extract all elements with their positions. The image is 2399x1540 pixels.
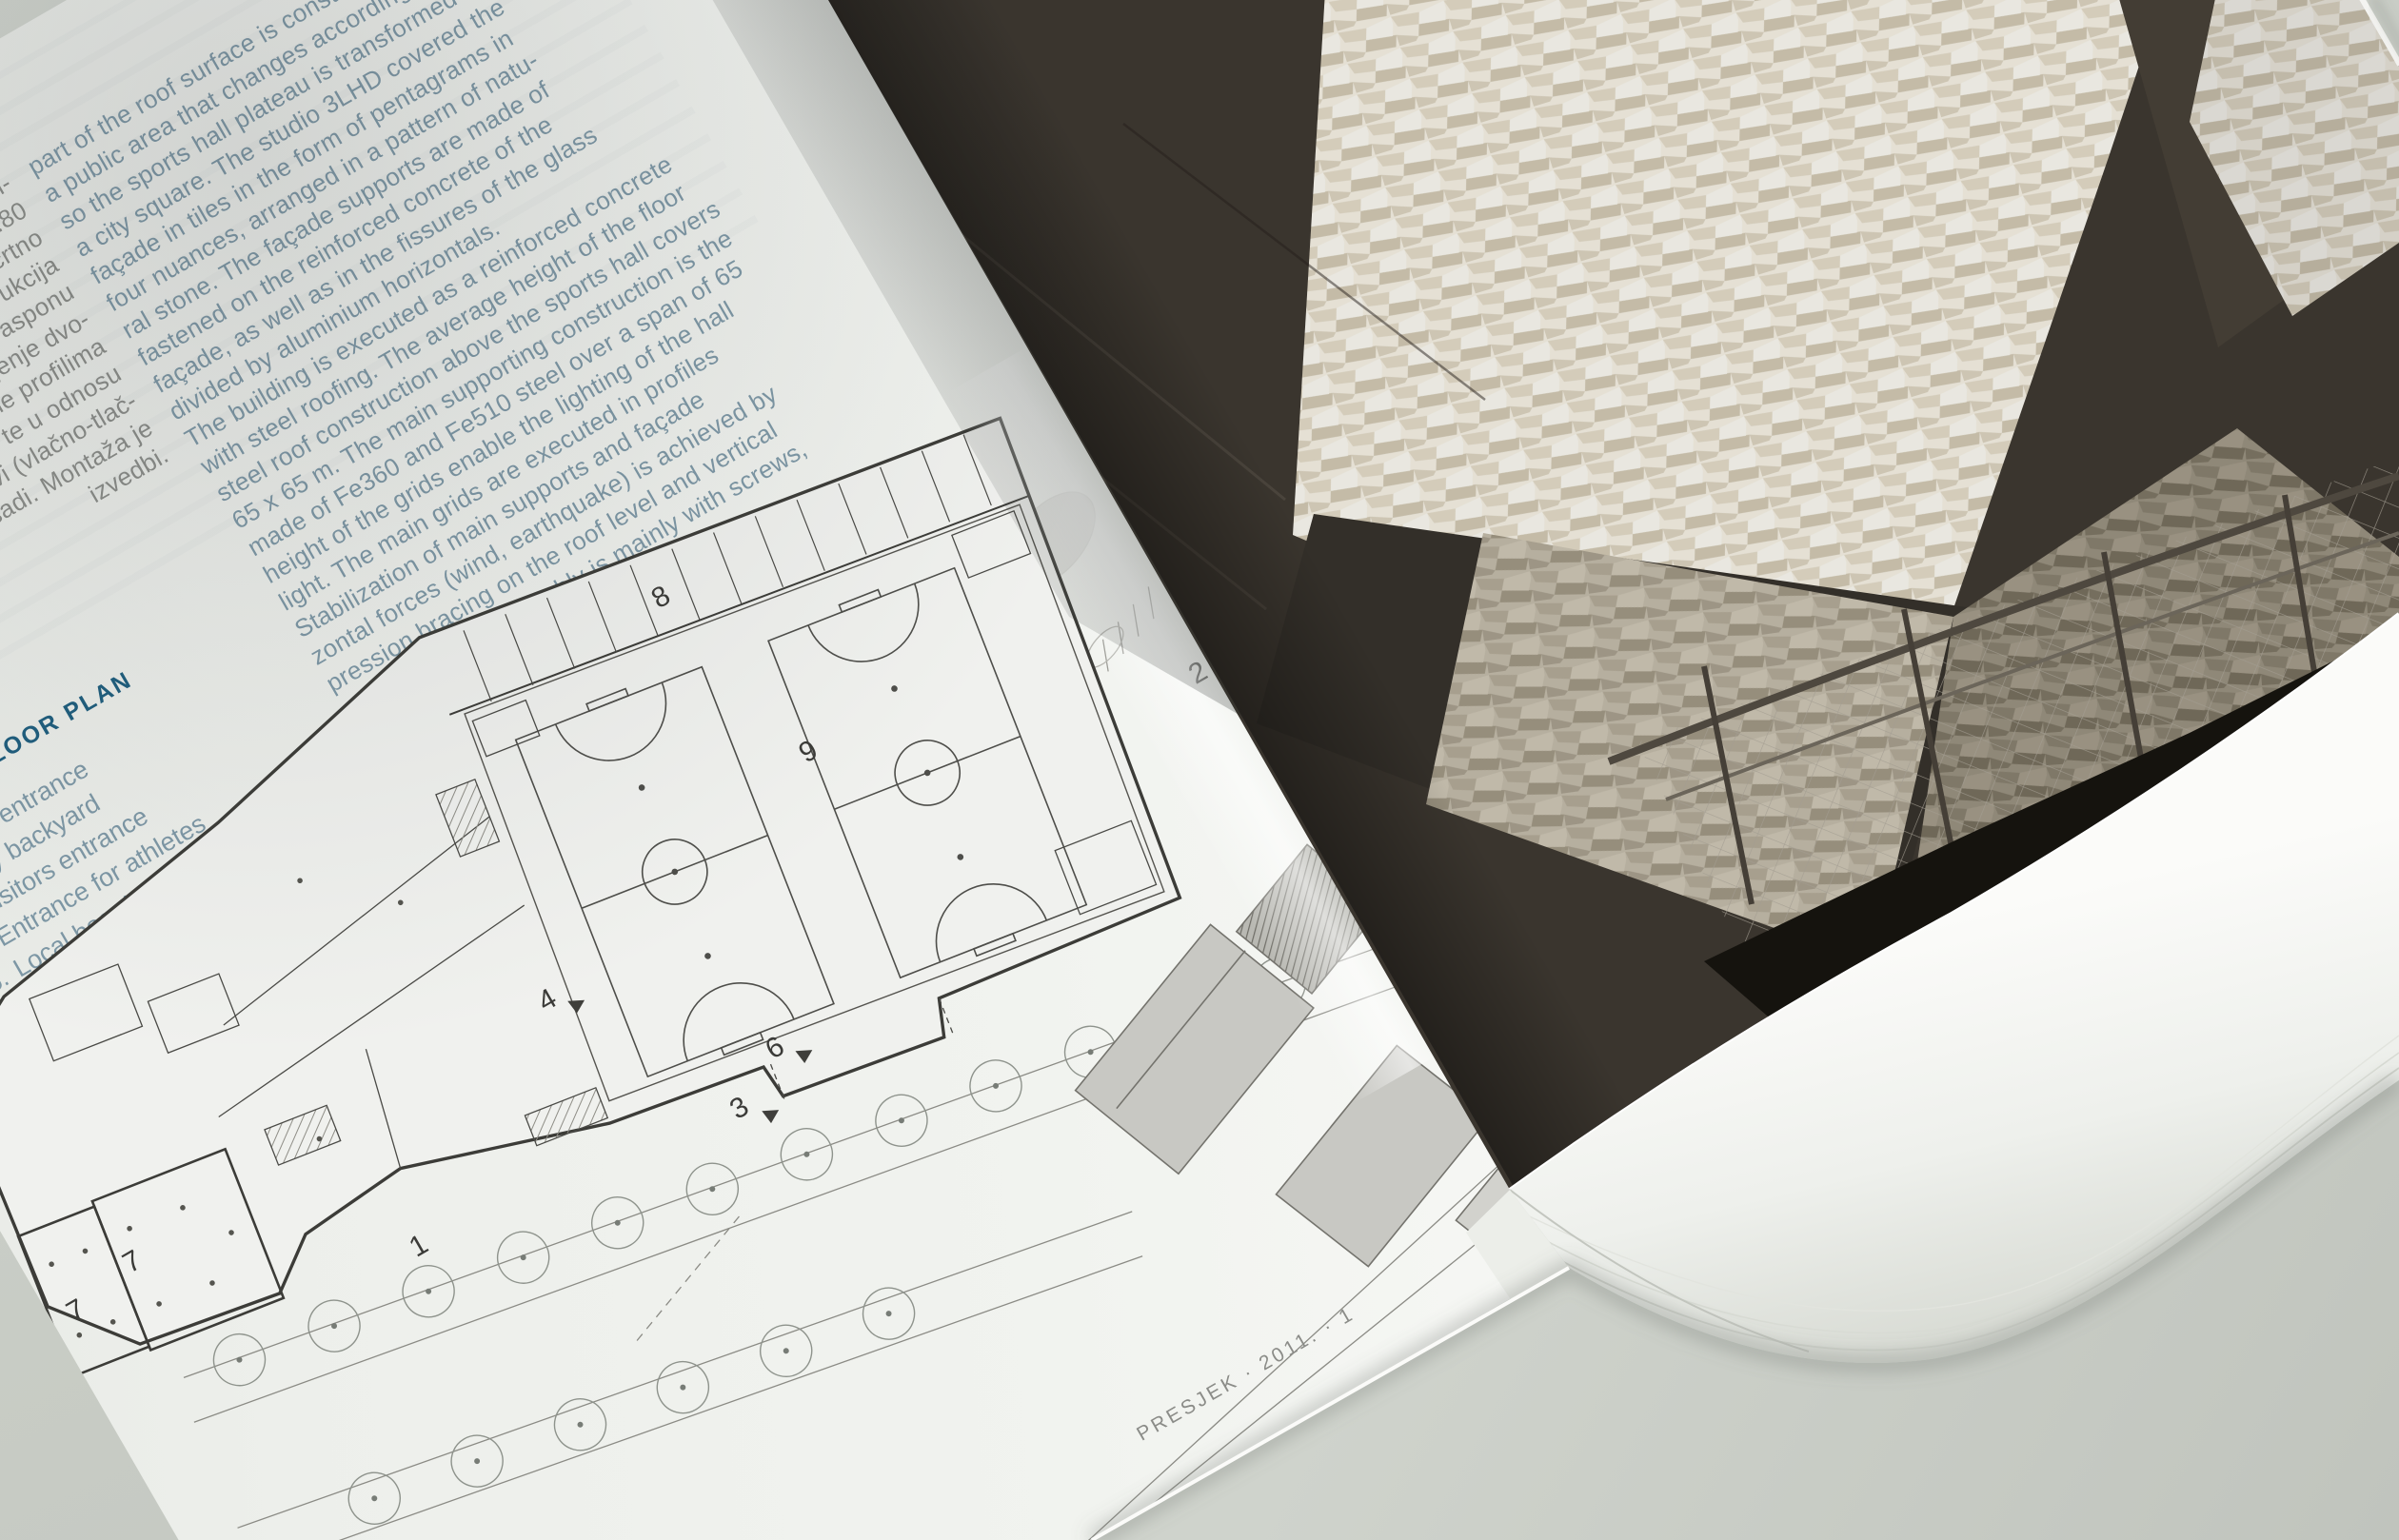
book-photo-scene: on- 3.80 crtno trukcija rasponu dljenje … — [0, 0, 2399, 1540]
lighting-vignette — [0, 0, 2399, 1540]
right-page-and-curl-overlay — [0, 0, 2399, 1540]
